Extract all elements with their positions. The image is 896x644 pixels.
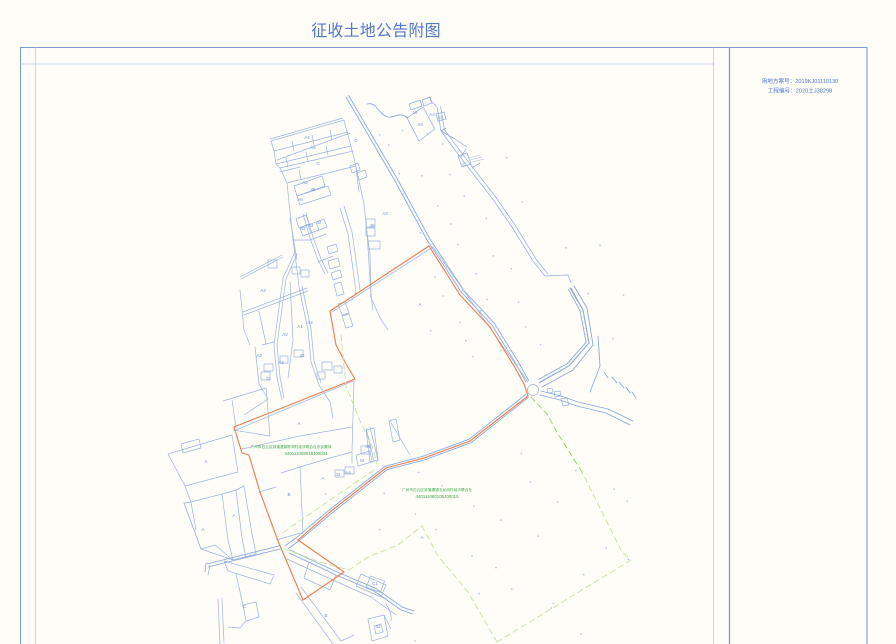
- svg-text:A3: A3: [382, 211, 388, 216]
- svg-text:用地方案号：2019KJ01110130: 用地方案号：2019KJ01110130: [762, 77, 839, 85]
- svg-text:45: 45: [310, 187, 316, 192]
- svg-text:A6: A6: [297, 197, 303, 202]
- svg-text:43: 43: [300, 226, 306, 231]
- svg-text:C1: C1: [372, 581, 378, 586]
- svg-text:征收土地公告附图: 征收土地公告附图: [311, 22, 441, 40]
- svg-text:43: 43: [299, 353, 305, 358]
- svg-text:43: 43: [437, 115, 443, 120]
- svg-text:A4: A4: [304, 135, 310, 140]
- svg-text:A3: A3: [278, 360, 284, 365]
- svg-text:42: 42: [375, 624, 381, 629]
- svg-text:440111008018J00034: 440111008018J00034: [284, 451, 328, 456]
- svg-text:A2: A2: [307, 320, 313, 325]
- svg-text:48: 48: [369, 223, 375, 228]
- svg-text:A2: A2: [302, 180, 308, 185]
- svg-text:A1: A1: [297, 324, 303, 329]
- svg-text:A: A: [297, 421, 300, 426]
- svg-text:43: 43: [308, 223, 314, 228]
- svg-text:A4: A4: [345, 470, 351, 475]
- svg-text:A: A: [418, 302, 421, 307]
- svg-text:广州市白云区钟落潭镇五龙岗村经济联合社: 广州市白云区钟落潭镇五龙岗村经济联合社: [402, 487, 472, 492]
- svg-text:工程编号：2020土J38298: 工程编号：2020土J38298: [768, 87, 832, 95]
- svg-text:B: B: [287, 492, 290, 497]
- svg-text:A4: A4: [429, 112, 435, 117]
- svg-text:A: A: [204, 459, 207, 464]
- svg-text:A: A: [201, 527, 204, 532]
- svg-text:A: A: [232, 513, 235, 518]
- svg-text:A: A: [420, 535, 423, 540]
- svg-text:43: 43: [335, 472, 341, 477]
- svg-text:A3: A3: [256, 353, 262, 358]
- svg-text:18: 18: [412, 110, 418, 115]
- svg-text:A: A: [321, 476, 324, 481]
- svg-text:A2: A2: [282, 332, 288, 337]
- svg-text:A3: A3: [417, 122, 423, 127]
- svg-text:A3: A3: [260, 288, 266, 293]
- svg-text:440111080105J00015: 440111080105J00015: [415, 494, 459, 499]
- svg-text:M: M: [360, 458, 364, 463]
- svg-text:广州市白云区钟落潭镇陈洞村经济联合社农民集体: 广州市白云区钟落潭镇陈洞村经济联合社农民集体: [250, 444, 331, 449]
- svg-text:B: B: [324, 613, 327, 618]
- svg-text:42: 42: [316, 220, 322, 225]
